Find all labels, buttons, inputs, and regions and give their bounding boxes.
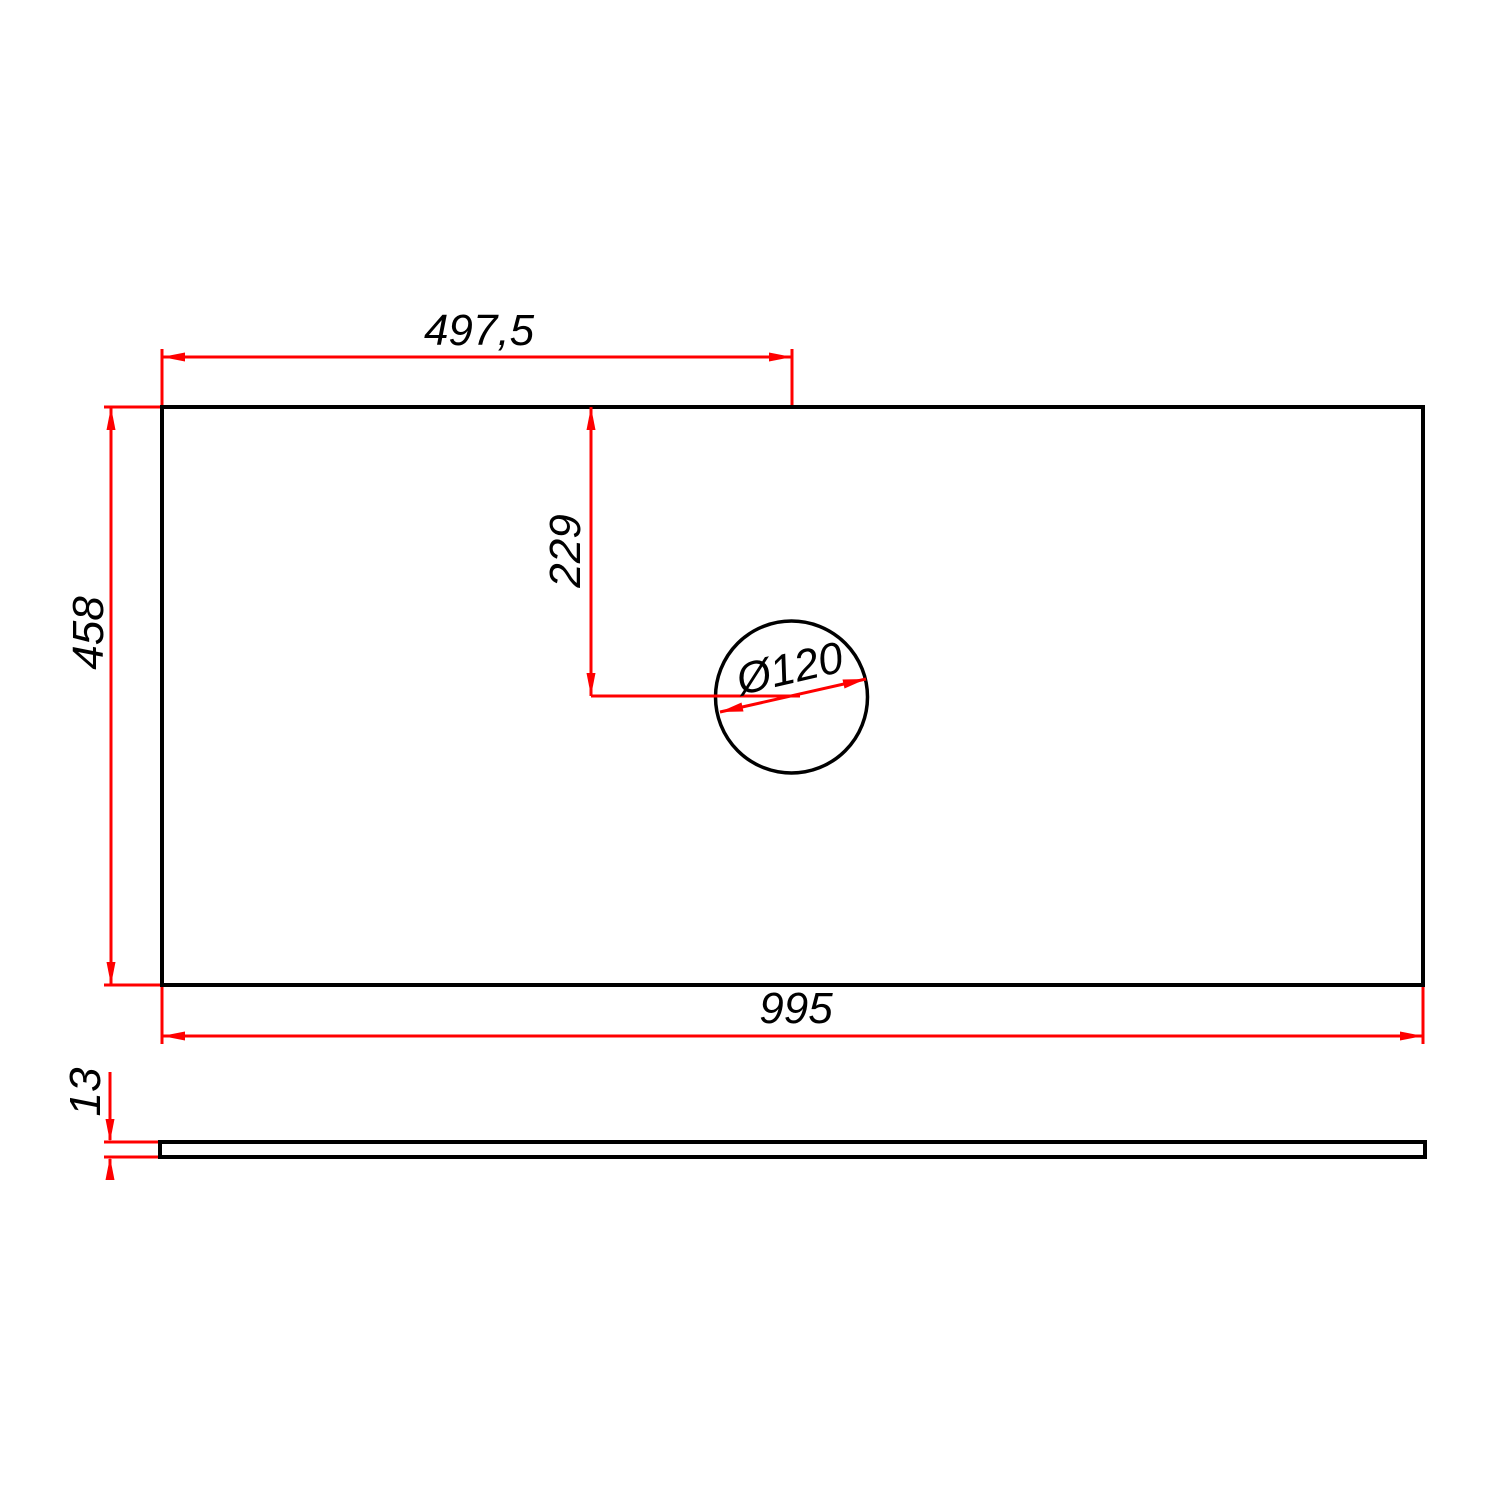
outline-layer: [160, 407, 1425, 1157]
arrow-offset-y-top: [587, 407, 596, 430]
arrow-offset-x-right: [769, 353, 792, 362]
dimension-layer: [104, 349, 1423, 1180]
arrow-thickness-bottom: [106, 1157, 115, 1180]
dim-panel-depth: [104, 407, 160, 985]
label-thickness: 13: [61, 1067, 110, 1116]
arrow-depth-top: [107, 407, 116, 430]
arrow-width-right: [1400, 1032, 1423, 1041]
arrow-diameter-left: [720, 703, 744, 713]
label-hole-diameter: Ø120: [730, 633, 848, 706]
label-hole-offset-y: 229: [541, 514, 590, 588]
label-hole-offset-x: 497,5: [424, 306, 535, 355]
panel-side-view-outline: [160, 1142, 1425, 1157]
arrow-width-left: [162, 1032, 185, 1041]
arrow-depth-bottom: [107, 962, 116, 985]
label-panel-depth: 458: [64, 596, 113, 670]
arrow-offset-y-bottom: [587, 673, 596, 696]
arrow-offset-x-left: [162, 353, 185, 362]
dimension-drawing-svg: 497,5 458 229 Ø120 995 13: [0, 0, 1500, 1500]
arrow-thickness-top: [106, 1119, 115, 1142]
label-panel-width: 995: [759, 984, 833, 1033]
dim-hole-offset-x: [162, 349, 792, 405]
drawing-canvas: 497,5 458 229 Ø120 995 13: [0, 0, 1500, 1500]
